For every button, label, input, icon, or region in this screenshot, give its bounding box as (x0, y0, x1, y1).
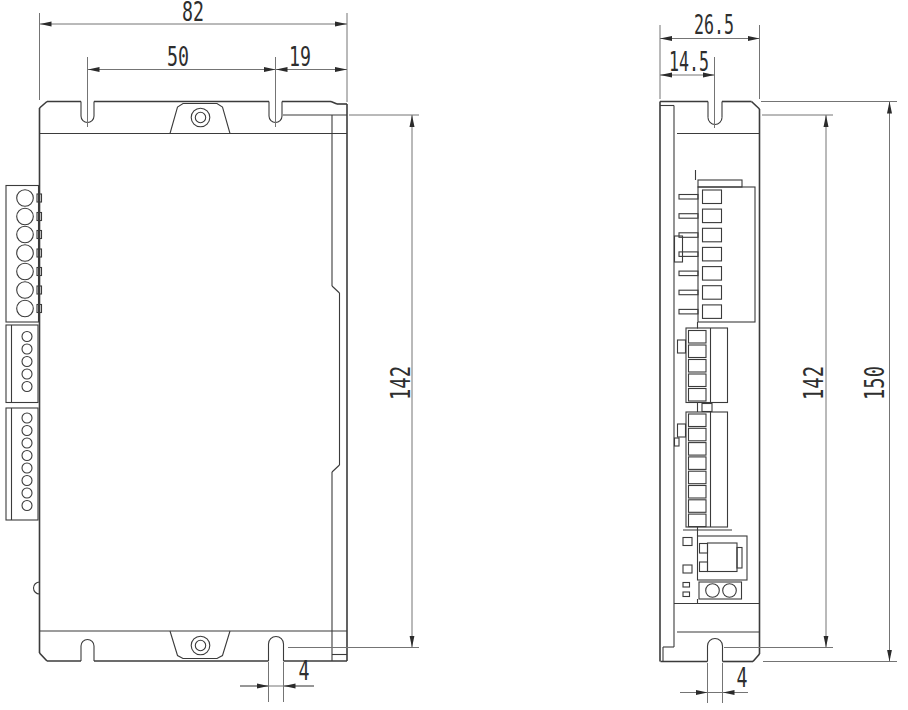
dimension-drawing: 82 50 19 142 4 (0, 0, 908, 710)
dim-label-side-slot-width: 4 (737, 663, 748, 693)
side-outline (660, 102, 760, 662)
dim-side-slot-offset: 14.5 (660, 47, 715, 128)
dim-front-slot-to-edge: 19 (276, 42, 348, 72)
terminal-pins (679, 195, 698, 314)
front-bottom-screw-tab (170, 631, 230, 659)
front-power-terminal-block (6, 186, 42, 323)
dim-label-side-overall-height: 150 (860, 366, 890, 400)
dim-label-side-flange-height: 142 (799, 366, 829, 400)
side-bottom-mounting-slot (708, 639, 723, 662)
dim-side-overall-height: 150 (761, 102, 897, 662)
side-signal-connector-a (678, 328, 728, 403)
dim-label-front-slot-to-edge: 19 (289, 42, 311, 72)
front-dimensions: 82 50 19 142 4 (40, 0, 420, 702)
dim-label-front-slot-width: 4 (299, 656, 310, 686)
terminal-latch (675, 236, 683, 262)
dim-front-slot-width: 4 (240, 656, 314, 702)
front-signal-connector-b (6, 408, 38, 520)
jack-latch-bottom (683, 565, 692, 573)
side-view (660, 102, 760, 662)
front-side-bump (34, 582, 40, 594)
dim-front-slot-spacing: 50 (88, 42, 276, 127)
front-top-screw-tab (170, 104, 230, 134)
front-bottom-mounting-slot-open (269, 637, 284, 662)
front-signal-connector-a (6, 325, 38, 403)
dim-label-side-slot-offset: 14.5 (669, 47, 709, 77)
connector-b-pin (675, 438, 680, 446)
dim-label-front-slot-spacing: 50 (167, 42, 189, 72)
side-signal-connector-b (675, 412, 728, 527)
dim-label-front-width: 82 (182, 0, 204, 27)
front-bottom-mounting-slot-left (81, 640, 94, 661)
side-modular-jack (683, 536, 747, 580)
front-view (6, 102, 347, 662)
dim-front-flange-height: 142 (288, 115, 419, 648)
side-dimensions: 26.5 14.5 142 150 4 (660, 10, 897, 703)
side-power-terminal (675, 180, 756, 322)
dim-side-slot-width: 4 (680, 663, 748, 704)
dim-label-side-depth: 26.5 (694, 10, 734, 40)
jack-latch-top (683, 538, 692, 546)
connector-bridge (702, 404, 712, 412)
drawing-canvas: 82 50 19 142 4 (0, 0, 908, 710)
dim-label-front-flange-height: 142 (386, 366, 416, 400)
connector-b-latch (678, 424, 686, 437)
connector-a-latch (678, 340, 686, 353)
side-indicator-connector (683, 582, 742, 599)
front-outline (40, 102, 348, 662)
